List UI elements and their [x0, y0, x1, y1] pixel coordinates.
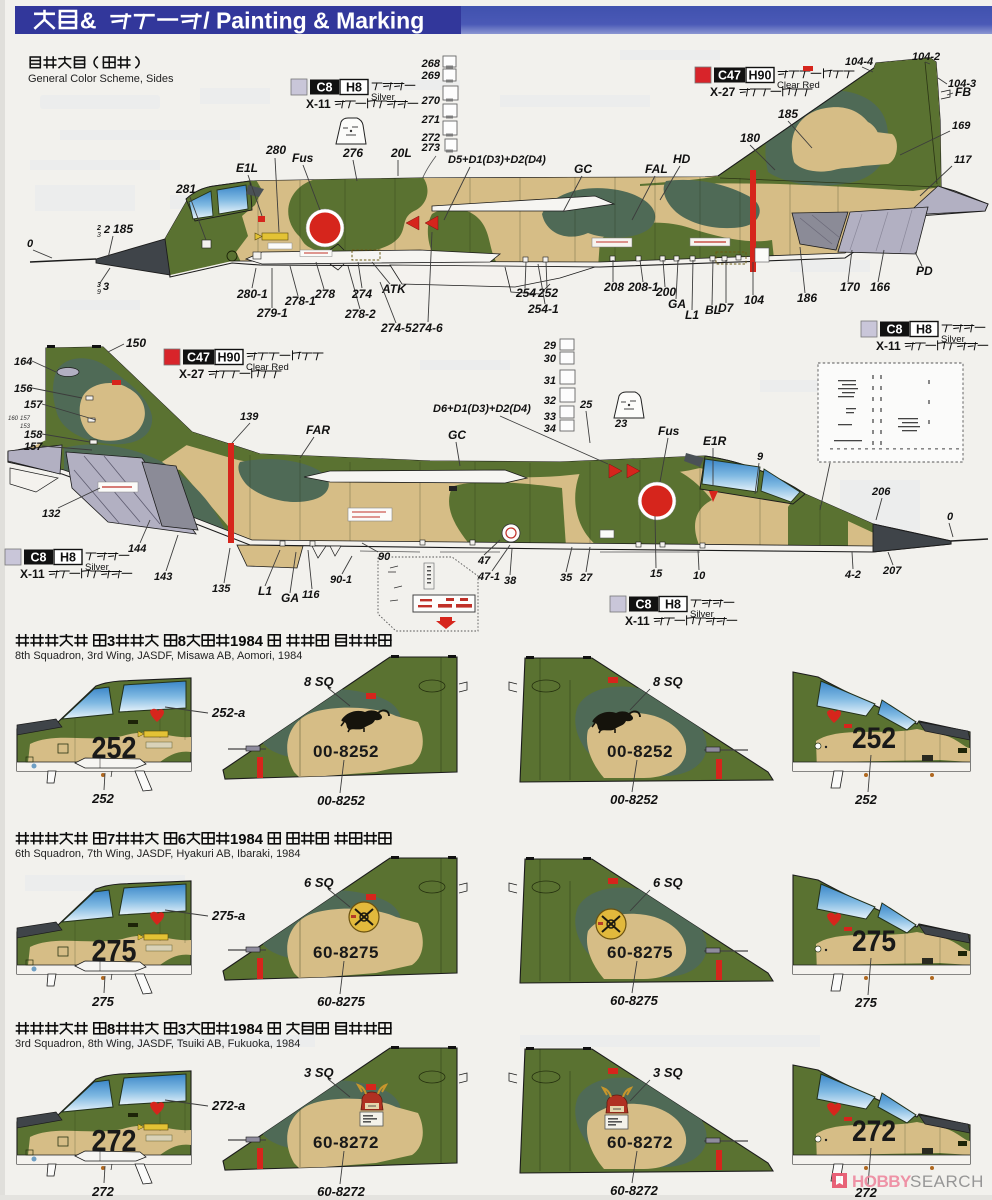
- svg-text:104-2: 104-2: [912, 51, 940, 63]
- svg-text:0: 0: [947, 511, 954, 523]
- svg-text:H90: H90: [218, 351, 241, 365]
- svg-text:C47: C47: [718, 69, 741, 83]
- svg-text:157: 157: [20, 416, 31, 422]
- svg-text:SEARCH: SEARCH: [910, 1172, 984, 1191]
- svg-text:275: 275: [91, 994, 114, 1009]
- svg-text:GC: GC: [448, 428, 466, 442]
- svg-text:271: 271: [421, 114, 440, 126]
- svg-text:25: 25: [579, 399, 593, 411]
- svg-text:L1: L1: [685, 308, 699, 322]
- svg-text:6th Squadron, 7th Wing, JASDF,: 6th Squadron, 7th Wing, JASDF, Hyakuri A…: [15, 848, 301, 860]
- svg-text:2: 2: [103, 224, 110, 236]
- svg-text:139: 139: [240, 411, 259, 423]
- svg-text:185: 185: [778, 107, 798, 121]
- svg-text:132: 132: [42, 508, 60, 520]
- svg-text:206: 206: [871, 486, 891, 498]
- svg-text:PD: PD: [916, 264, 933, 278]
- svg-text:L1: L1: [258, 584, 272, 598]
- svg-text:E1L: E1L: [236, 161, 258, 175]
- svg-text:274-5: 274-5: [380, 321, 412, 335]
- svg-text:8th Squadron, 3rd Wing, JASDF,: 8th Squadron, 3rd Wing, JASDF, Misawa AB…: [15, 650, 302, 662]
- svg-text:30: 30: [544, 353, 557, 365]
- svg-text:6: 6: [178, 832, 186, 848]
- svg-text:H90: H90: [749, 69, 772, 83]
- svg-text:268: 268: [421, 58, 441, 70]
- svg-text:X-11: X-11: [20, 567, 45, 581]
- svg-text:C8: C8: [636, 598, 652, 612]
- svg-text:275-a: 275-a: [211, 908, 245, 923]
- svg-text:3: 3: [178, 1022, 186, 1038]
- svg-text:D5+D1(D3)+D2(D4): D5+D1(D3)+D2(D4): [448, 154, 546, 166]
- svg-text:278: 278: [314, 287, 335, 301]
- svg-text:33: 33: [544, 411, 556, 423]
- svg-text:GC: GC: [574, 162, 592, 176]
- svg-text:29: 29: [543, 340, 557, 352]
- svg-text:207: 207: [882, 565, 902, 577]
- svg-text:185: 185: [113, 222, 133, 236]
- svg-text:H8: H8: [346, 81, 362, 95]
- svg-text:280: 280: [265, 143, 286, 157]
- svg-text:252: 252: [854, 792, 877, 807]
- svg-text:HOBBY: HOBBY: [852, 1172, 912, 1191]
- svg-text:3: 3: [103, 281, 109, 293]
- svg-text:60-8275: 60-8275: [317, 994, 365, 1009]
- svg-text:X-11: X-11: [306, 97, 331, 111]
- svg-text:272-a: 272-a: [211, 1098, 245, 1113]
- svg-text:8 SQ: 8 SQ: [304, 674, 334, 689]
- svg-text:H8: H8: [665, 598, 681, 612]
- svg-text:60-8275: 60-8275: [610, 993, 658, 1008]
- svg-text:252: 252: [91, 791, 114, 806]
- svg-text:Fus: Fus: [292, 151, 314, 165]
- svg-text:E1R: E1R: [703, 434, 727, 448]
- svg-text:15: 15: [650, 568, 663, 580]
- svg-text:166: 166: [870, 280, 890, 294]
- svg-text:280-1: 280-1: [236, 287, 268, 301]
- svg-text:00-8252: 00-8252: [317, 793, 365, 808]
- svg-text:3: 3: [97, 232, 101, 239]
- svg-text:8: 8: [107, 1022, 115, 1038]
- svg-text:60-8275: 60-8275: [607, 943, 673, 962]
- svg-text:60-8272: 60-8272: [313, 1133, 379, 1152]
- svg-text:32: 32: [544, 395, 556, 407]
- svg-text:6 SQ: 6 SQ: [304, 875, 334, 890]
- svg-text:276: 276: [342, 146, 363, 160]
- svg-text:X-27: X-27: [710, 85, 736, 99]
- svg-text:157: 157: [24, 399, 43, 411]
- svg-text:2: 2: [96, 225, 101, 232]
- svg-text:C8: C8: [887, 323, 903, 337]
- svg-text:9: 9: [97, 289, 101, 296]
- svg-text:169: 169: [952, 120, 971, 132]
- svg-text:208-1: 208-1: [627, 280, 659, 294]
- svg-text:D6+D1(D3)+D2(D4): D6+D1(D3)+D2(D4): [433, 403, 531, 415]
- svg-text:60-8272: 60-8272: [610, 1183, 658, 1198]
- svg-text:274-6: 274-6: [411, 321, 443, 335]
- svg-text:275: 275: [852, 925, 896, 958]
- svg-text:/ Painting & Marking: / Painting & Marking: [203, 8, 424, 34]
- svg-text:164: 164: [14, 356, 32, 368]
- svg-text:254: 254: [515, 286, 536, 300]
- svg-text:35: 35: [560, 572, 573, 584]
- svg-text:252: 252: [537, 286, 558, 300]
- svg-text:8 SQ: 8 SQ: [653, 674, 683, 689]
- svg-text:3: 3: [107, 634, 115, 650]
- svg-text:X-27: X-27: [179, 367, 205, 381]
- svg-text:104-4: 104-4: [845, 56, 873, 68]
- svg-text:252: 252: [92, 730, 137, 765]
- svg-text:31: 31: [544, 375, 556, 387]
- svg-text:278-1: 278-1: [284, 294, 316, 308]
- svg-text:6 SQ: 6 SQ: [653, 875, 683, 890]
- svg-text:104: 104: [744, 293, 764, 307]
- svg-text:3 SQ: 3 SQ: [304, 1065, 334, 1080]
- svg-text:170: 170: [840, 280, 860, 294]
- svg-text:HD: HD: [673, 152, 691, 166]
- svg-text:143: 143: [154, 571, 172, 583]
- svg-text:4-2: 4-2: [844, 569, 861, 581]
- svg-text:Fus: Fus: [658, 424, 680, 438]
- svg-text:9: 9: [757, 451, 764, 463]
- svg-text:X-11: X-11: [625, 614, 650, 628]
- svg-text:47-1: 47-1: [477, 571, 500, 583]
- svg-text:272: 272: [852, 1115, 896, 1148]
- svg-text:158: 158: [24, 429, 43, 441]
- svg-text:278-2: 278-2: [344, 307, 376, 321]
- svg-text:90-1: 90-1: [330, 574, 352, 586]
- svg-text:H8: H8: [60, 551, 76, 565]
- svg-text:&: &: [80, 8, 97, 34]
- svg-text:X-11: X-11: [876, 339, 901, 353]
- svg-text:00-8252: 00-8252: [313, 742, 379, 761]
- svg-text:47: 47: [477, 555, 491, 567]
- svg-text:275: 275: [854, 995, 877, 1010]
- svg-text:157: 157: [24, 441, 43, 453]
- svg-text:272: 272: [92, 1123, 137, 1158]
- svg-text:254-1: 254-1: [527, 302, 559, 316]
- svg-text:10: 10: [693, 570, 706, 582]
- svg-text:GA: GA: [281, 591, 299, 605]
- svg-text:20L: 20L: [390, 146, 412, 160]
- svg-text:186: 186: [797, 291, 817, 305]
- svg-text:27: 27: [579, 572, 593, 584]
- svg-text:8: 8: [178, 634, 186, 650]
- svg-text:281: 281: [175, 182, 196, 196]
- svg-text:275: 275: [92, 933, 137, 968]
- svg-text:117: 117: [954, 154, 972, 166]
- svg-text:23: 23: [614, 418, 627, 430]
- svg-text:FAL: FAL: [645, 162, 668, 176]
- svg-text:H8: H8: [916, 323, 932, 337]
- svg-text:FB: FB: [955, 85, 971, 99]
- svg-text:270: 270: [421, 95, 441, 107]
- svg-text:274: 274: [351, 287, 372, 301]
- svg-text:C8: C8: [31, 551, 47, 565]
- svg-text:272: 272: [91, 1184, 114, 1199]
- svg-text:3rd Squadron, 8th Wing, JASDF,: 3rd Squadron, 8th Wing, JASDF, Tsuiki AB…: [15, 1038, 300, 1050]
- svg-text:156: 156: [14, 383, 33, 395]
- svg-text:208: 208: [603, 280, 624, 294]
- svg-text:38: 38: [504, 575, 517, 587]
- svg-text:252: 252: [852, 722, 896, 755]
- svg-text:C47: C47: [187, 351, 210, 365]
- svg-text:60-8275: 60-8275: [313, 943, 379, 962]
- svg-text:273: 273: [421, 142, 440, 154]
- svg-text:1984: 1984: [230, 634, 264, 650]
- svg-text:144: 144: [128, 543, 146, 555]
- svg-text:60-8272: 60-8272: [317, 1184, 365, 1199]
- svg-text:279-1: 279-1: [256, 306, 288, 320]
- svg-text:0: 0: [27, 238, 34, 250]
- svg-text:60-8272: 60-8272: [607, 1133, 673, 1152]
- svg-text:C8: C8: [317, 81, 333, 95]
- svg-text:116: 116: [302, 589, 320, 601]
- svg-text:D7: D7: [718, 301, 735, 315]
- svg-text:180: 180: [740, 131, 760, 145]
- svg-text:1984: 1984: [230, 832, 264, 848]
- svg-text:135: 135: [212, 583, 231, 595]
- svg-text:7: 7: [107, 832, 115, 848]
- svg-text:150: 150: [126, 336, 146, 350]
- svg-text:252-a: 252-a: [211, 705, 245, 720]
- svg-text:3 SQ: 3 SQ: [653, 1065, 683, 1080]
- svg-text:General Color Scheme, Sides: General Color Scheme, Sides: [28, 73, 174, 85]
- svg-text:FAR: FAR: [306, 423, 330, 437]
- svg-text:34: 34: [544, 423, 556, 435]
- svg-text:GA: GA: [668, 297, 686, 311]
- svg-text:160: 160: [8, 416, 19, 422]
- svg-text:1984: 1984: [230, 1022, 264, 1038]
- svg-text:00-8252: 00-8252: [610, 792, 658, 807]
- svg-text:269: 269: [421, 70, 441, 82]
- svg-text:00-8252: 00-8252: [607, 742, 673, 761]
